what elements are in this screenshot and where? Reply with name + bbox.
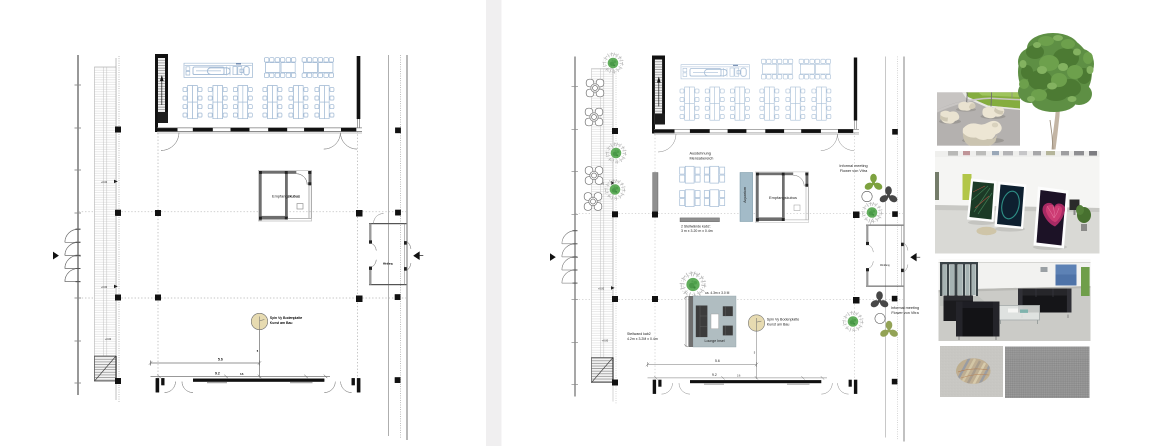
svg-text:Informal meeting: Informal meeting — [839, 164, 867, 168]
svg-text:Lounge Insel: Lounge Insel — [705, 339, 725, 343]
svg-text:2 Stellwände kab2:: 2 Stellwände kab2: — [681, 224, 711, 228]
svg-text:Stellwand kab2: Stellwand kab2 — [627, 332, 651, 336]
svg-text:Ausdehnung: Ausdehnung — [690, 152, 711, 156]
svg-text:4.2m x 3.2M x 0.4m: 4.2m x 3.2M x 0.4m — [627, 337, 658, 341]
svg-text:Aquarium: Aquarium — [743, 187, 747, 203]
svg-text:Flower von Vitra: Flower von Vitra — [840, 169, 868, 173]
svg-text:3 m x 3.20 m x 0.4m: 3 m x 3.20 m x 0.4m — [681, 229, 713, 233]
svg-text:ca. 4.3m x 3.0 M: ca. 4.3m x 3.0 M — [705, 291, 730, 295]
svg-text:Mensabereich: Mensabereich — [690, 157, 714, 161]
svg-text:Informal meeting: Informal meeting — [891, 306, 919, 310]
svg-text:Flower von Vitra: Flower von Vitra — [891, 311, 919, 315]
